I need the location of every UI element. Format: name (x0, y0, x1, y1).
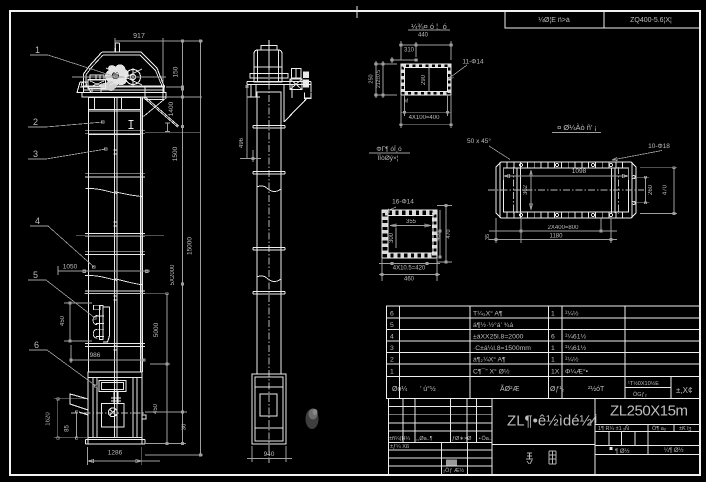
svg-text:¹¼½: ¹¼½ (565, 310, 579, 318)
svg-text:á¶½·½°á’ ¾á: á¶½·½°á’ ¾á (473, 321, 513, 329)
svg-text:2: 2 (390, 357, 394, 364)
svg-text:940: 940 (264, 451, 275, 458)
svg-text:6: 6 (551, 334, 555, 341)
svg-text:470: 470 (446, 229, 452, 238)
svg-text:290: 290 (421, 74, 427, 85)
svg-text:Φ¼Æ°•: Φ¼Æ°• (565, 368, 589, 376)
svg-text:6: 6 (34, 340, 39, 350)
svg-text:1400: 1400 (168, 101, 175, 116)
svg-text:50 x 45°: 50 x 45° (467, 137, 491, 145)
svg-text:4: 4 (390, 334, 394, 341)
svg-text:36: 36 (182, 423, 188, 430)
svg-text:362: 362 (523, 184, 529, 195)
svg-text:986: 986 (90, 352, 101, 359)
svg-text:1¶ R¼ ±1 ₓÑ: 1¶ R¼ ±1 ₓÑ (598, 425, 629, 432)
svg-text:1: 1 (35, 45, 40, 55)
svg-text:1: 1 (551, 345, 555, 352)
svg-text:ΦΓ¶ óÏ¸ó: ΦΓ¶ óÏ¸ó (376, 145, 402, 153)
svg-text:10-Φ18: 10-Φ18 (648, 143, 670, 150)
svg-text:440: 440 (418, 33, 429, 39)
svg-text:212±0.5: 212±0.5 (376, 70, 382, 88)
svg-text:ZL250X15m: ZL250X15m (610, 403, 688, 420)
svg-text:310: 310 (404, 48, 415, 54)
svg-text:4X100=400: 4X100=400 (409, 115, 441, 121)
svg-text:450: 450 (60, 315, 66, 326)
svg-text:5000: 5000 (153, 322, 160, 337)
svg-text:Ö¶ aₒ: Ö¶ aₒ (652, 425, 666, 432)
svg-text:1286: 1286 (108, 450, 123, 457)
svg-text:¤ Ø¼Àò ñ’ ¡: ¤ Ø¼Àò ñ’ ¡ (557, 123, 597, 132)
svg-text:6: 6 (390, 311, 394, 318)
svg-text:260: 260 (648, 184, 654, 195)
svg-text:3: 3 (33, 149, 38, 159)
svg-text:±ƒ¼ Xß: ±ƒ¼ Xß (390, 444, 410, 450)
svg-text:1050: 1050 (63, 264, 78, 271)
svg-text:ÃØ²Æ: ÃØ²Æ (500, 384, 519, 393)
svg-text:,„Øa₋¶: ,„Øa₋¶ (416, 436, 433, 442)
svg-text:²½óT: ²½óT (588, 385, 605, 393)
svg-text:917: 917 (133, 33, 145, 40)
svg-text:5: 5 (33, 270, 38, 280)
svg-text:¼Ø¦E ñ>á: ¼Ø¦E ñ>á (538, 17, 570, 24)
svg-text:C¶¯” X° Ø½: C¶¯” X° Ø½ (473, 368, 510, 376)
svg-text:¼¶ Ø½: ¼¶ Ø½ (664, 447, 684, 454)
svg-text:⋆Öa₋: ⋆Öa₋ (478, 435, 492, 442)
svg-text:1X: 1X (551, 369, 560, 376)
svg-text:ƒØ∗×Ø: ƒØ∗×Ø (452, 436, 472, 442)
svg-text:ÖGƒ₂: ÖGƒ₂ (633, 391, 647, 398)
svg-text:4X10.5=420: 4X10.5=420 (393, 266, 426, 272)
svg-text:1500: 1500 (172, 146, 179, 161)
svg-text:·C±á¼l.8=1500mm: ·C±á¼l.8=1500mm (473, 345, 531, 352)
svg-text:1180: 1180 (550, 234, 564, 240)
svg-text:470: 470 (663, 184, 669, 195)
svg-text:T¼₃X° A¶: T¼₃X° A¶ (473, 310, 503, 318)
svg-text:±ñ¼(H¼: ±ñ¼(H¼ (389, 436, 410, 442)
svg-text:5: 5 (390, 322, 394, 329)
svg-text:¹¼61½: ¹¼61½ (565, 344, 586, 352)
svg-text:’ ú°½: ’ ú°½ (420, 385, 436, 393)
svg-text:ÏÏòØý×¦: ÏÏòØý×¦ (377, 154, 398, 162)
svg-text:₂Öƒ Æ½: ₂Öƒ Æ½ (443, 467, 465, 474)
svg-text:±,X¢: ±,X¢ (676, 386, 692, 395)
svg-text:M: M (404, 99, 408, 105)
svg-text:11-Φ14: 11-Φ14 (462, 59, 484, 66)
svg-text:450: 450 (153, 403, 159, 414)
svg-text:5X2000: 5X2000 (170, 264, 176, 285)
svg-text:400: 400 (436, 231, 442, 240)
svg-text:ZQ400-5.6¦X¦: ZQ400-5.6¦X¦ (630, 17, 672, 24)
svg-text:1: 1 (551, 357, 555, 364)
svg-text:150: 150 (173, 66, 180, 77)
svg-text:15000: 15000 (187, 237, 194, 255)
svg-text:496: 496 (239, 137, 245, 148)
svg-text:355: 355 (406, 219, 417, 225)
svg-text:1: 1 (390, 369, 394, 376)
svg-text:16-Φ14: 16-Φ14 (392, 199, 414, 206)
svg-text:¶ Ø½: ¶ Ø½ (615, 448, 630, 455)
svg-text:460: 460 (404, 277, 415, 283)
svg-text:¹¼½: ¹¼½ (565, 356, 579, 364)
svg-text:300: 300 (389, 232, 395, 243)
svg-text:2X400=800: 2X400=800 (548, 225, 580, 231)
svg-text:¹¼61½: ¹¼61½ (565, 333, 586, 341)
svg-text:35: 35 (485, 234, 491, 240)
svg-text:1098: 1098 (572, 168, 587, 175)
svg-text:4: 4 (35, 216, 40, 226)
svg-text:á¶₂¼X° A¶: á¶₂¼X° A¶ (473, 356, 506, 364)
svg-text:3: 3 (390, 345, 394, 352)
svg-text:Øó¼: Øó¼ (392, 386, 407, 393)
svg-text:1: 1 (551, 311, 555, 318)
svg-text:¹T½0X10½E: ¹T½0X10½E (628, 380, 659, 387)
svg-text:±áXX25l.8=2000: ±áXX25l.8=2000 (473, 334, 524, 341)
svg-text:1620: 1620 (46, 412, 52, 426)
svg-text:Øƒ¹₂: Øƒ¹₂ (550, 386, 565, 393)
svg-text:250: 250 (369, 74, 375, 83)
svg-text:2: 2 (33, 117, 38, 127)
svg-text:±Ƙ Ɩʒ: ±Ƙ Ɩʒ (679, 426, 691, 432)
svg-text:85: 85 (65, 425, 71, 432)
svg-text:ZL¶•ê½ìdé½⁄ʲ: ZL¶•ê½ìdé½⁄ʲ (507, 413, 597, 430)
